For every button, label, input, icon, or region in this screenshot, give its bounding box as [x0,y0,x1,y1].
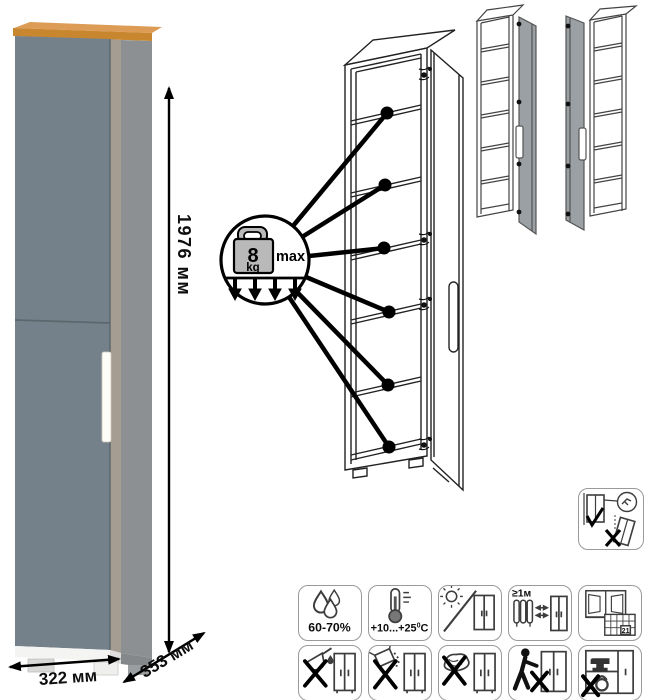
calendar-icon: 21 [605,614,635,635]
cabinet-glyph [404,654,425,694]
door-handle-recess [449,282,458,352]
no-scraper-icon [438,645,502,700]
shelf-dot [379,179,392,192]
sun-icon [446,591,456,601]
variant-left-handle [516,126,523,158]
cross-mark [606,530,620,546]
radiator-icon [514,600,532,627]
temperature-unit: C [421,622,429,634]
distance-label: ≥1м [512,588,531,599]
door-variant-drawings [470,4,648,246]
variant-left-drawing [477,5,536,234]
temperature-range: +10...+25 [371,622,417,634]
shelf-dot [382,379,395,392]
sunlight-protection-icon [438,585,502,641]
no-abrasive-powder-icon [368,645,432,700]
dimension-arrows [0,0,230,700]
humidity-icon: 60-70% [298,585,362,641]
temperature-icon: +10...+250C [368,585,432,641]
slash-line [444,591,476,632]
load-limit-badge: 8 kg max [221,216,309,304]
height-dimension-label: 1976 мм [173,214,194,296]
shelf-dot [383,306,396,319]
spacing-arrows [536,605,548,617]
drop-glyph [327,655,333,664]
ventilation-icon: 21 [578,585,642,641]
shelf-dot [378,242,391,255]
no-liquids-icon [298,645,362,700]
open-door [431,50,463,490]
open-cabinet-drawing [345,30,463,490]
cabinet-glyph [474,595,494,629]
shelf-callout-diagram: 8 kg max [213,8,478,500]
cross-mark [532,672,547,690]
load-unit: kg [246,262,259,274]
variant-right-drawing [566,6,636,230]
heat-distance-icon: ≥1м [508,585,572,641]
wall-anchoring-icon [578,488,644,550]
anchor-detail-magnifier [618,493,637,512]
anvil-icon [591,658,610,671]
water-drops-icon [314,590,340,618]
temperature-label: +10...+250C [371,622,429,635]
humidity-label: 60-70% [308,620,350,634]
calendar-day-label: 21 [622,627,630,635]
cabinet-glyph [334,654,355,694]
cabinet-glyph [551,596,567,630]
no-dragging-icon [508,645,572,700]
furniture-infographic: 1976 мм 322 мм 353 мм [0,0,648,700]
person-pushing-icon [515,648,537,688]
shelf-dot [381,107,394,120]
shelf-dot [383,441,396,454]
cross-mark [375,661,396,687]
shelf-dots [378,107,396,454]
variant-right-handle [579,128,586,160]
open-window-icon [586,591,626,618]
variant-right-door [566,16,584,230]
no-overload-icon [578,645,642,700]
thermometer-icon [389,589,411,623]
cabinet-glyph [474,654,495,694]
load-qualifier: max [276,249,305,265]
